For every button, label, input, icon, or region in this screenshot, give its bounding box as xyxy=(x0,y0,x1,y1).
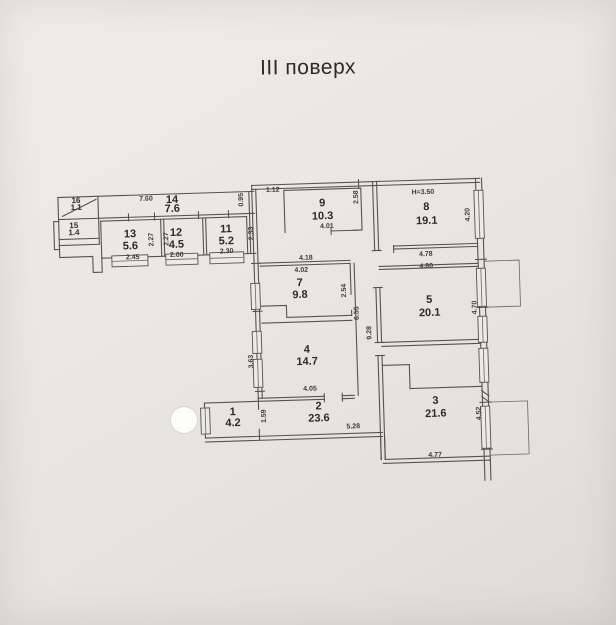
room-13-number: 13 xyxy=(124,228,137,240)
dimension-label: 4.20 xyxy=(464,208,471,222)
room-16-area: 1.1 xyxy=(70,203,82,212)
room-3-area: 21.6 xyxy=(425,407,447,420)
room-12-number: 12 xyxy=(170,227,183,239)
dimension-label: 4.18 xyxy=(299,255,313,262)
dimension-label: 4.01 xyxy=(320,223,334,230)
dimension-label: 2.54 xyxy=(341,284,348,298)
room-2-area: 23.6 xyxy=(308,412,330,425)
dimension-label: 2.58 xyxy=(353,190,360,204)
dimension-label: 3.63 xyxy=(248,355,255,369)
room-2-number: 2 xyxy=(315,400,321,412)
room-5-number: 5 xyxy=(426,294,432,306)
dimension-label: 1.12 xyxy=(266,187,280,194)
room-14-area: 7.6 xyxy=(164,203,180,215)
room-4-number: 4 xyxy=(304,344,311,356)
scanned-floor-plan-page: III поверх xyxy=(0,0,616,625)
walls-main-outer xyxy=(198,178,491,489)
room-12-area: 4.5 xyxy=(169,239,185,251)
balconies xyxy=(484,260,529,455)
room-5-area: 20.1 xyxy=(419,307,441,320)
dimension-label: 2.45 xyxy=(126,254,140,261)
dimension-label: 6.55 xyxy=(353,306,360,320)
dimension-label: 4.02 xyxy=(294,267,308,274)
dimension-label: 4.77 xyxy=(428,452,442,459)
dimension-label: 4.80 xyxy=(419,263,433,270)
balcony-room-5 xyxy=(484,260,520,307)
balcony-room-3 xyxy=(489,401,530,455)
floor-plan-svg: 161.1151.4147.6135.6124.5115.2910.3819.1… xyxy=(0,0,616,625)
dimension-label: 0.95 xyxy=(238,193,245,207)
room-1-area: 4.2 xyxy=(225,417,241,429)
dimension-label: 7.60 xyxy=(139,196,153,203)
floor-plan: 161.1151.4147.6135.6124.5115.2910.3819.1… xyxy=(53,174,530,494)
hole-punch-mark xyxy=(171,407,198,434)
room-11-number: 11 xyxy=(220,223,232,235)
room-15-area: 1.4 xyxy=(68,228,80,237)
dimension-label: 4.78 xyxy=(419,251,433,258)
room-7-area: 9.8 xyxy=(292,289,308,301)
dimension-label: 4.52 xyxy=(476,406,483,420)
dimension-label: 4.05 xyxy=(303,386,317,393)
dimension-label: 9.28 xyxy=(366,326,373,340)
dimension-label: 4.70 xyxy=(471,300,478,314)
room-4-area: 14.7 xyxy=(296,355,318,368)
room-8-area: 19.1 xyxy=(416,215,438,228)
room-13-area: 5.6 xyxy=(123,240,139,252)
dimension-label: H=3.50 xyxy=(411,189,434,197)
dimension-label: 2.27 xyxy=(148,233,155,247)
dimension-label: 5.28 xyxy=(346,423,360,430)
room-9-area: 10.3 xyxy=(312,210,334,223)
dimension-label: 2.00 xyxy=(170,252,184,259)
room-11-area: 5.2 xyxy=(219,235,235,247)
room-9-number: 9 xyxy=(319,197,325,209)
dimension-label: 2.30 xyxy=(220,248,234,255)
dimension-label: 2.27 xyxy=(163,232,170,246)
room-8-number: 8 xyxy=(423,201,429,213)
room-3-number: 3 xyxy=(432,395,438,407)
dimension-label: 2.33 xyxy=(248,226,255,240)
dimension-label: 1.59 xyxy=(261,409,268,423)
room-7-number: 7 xyxy=(296,277,302,289)
